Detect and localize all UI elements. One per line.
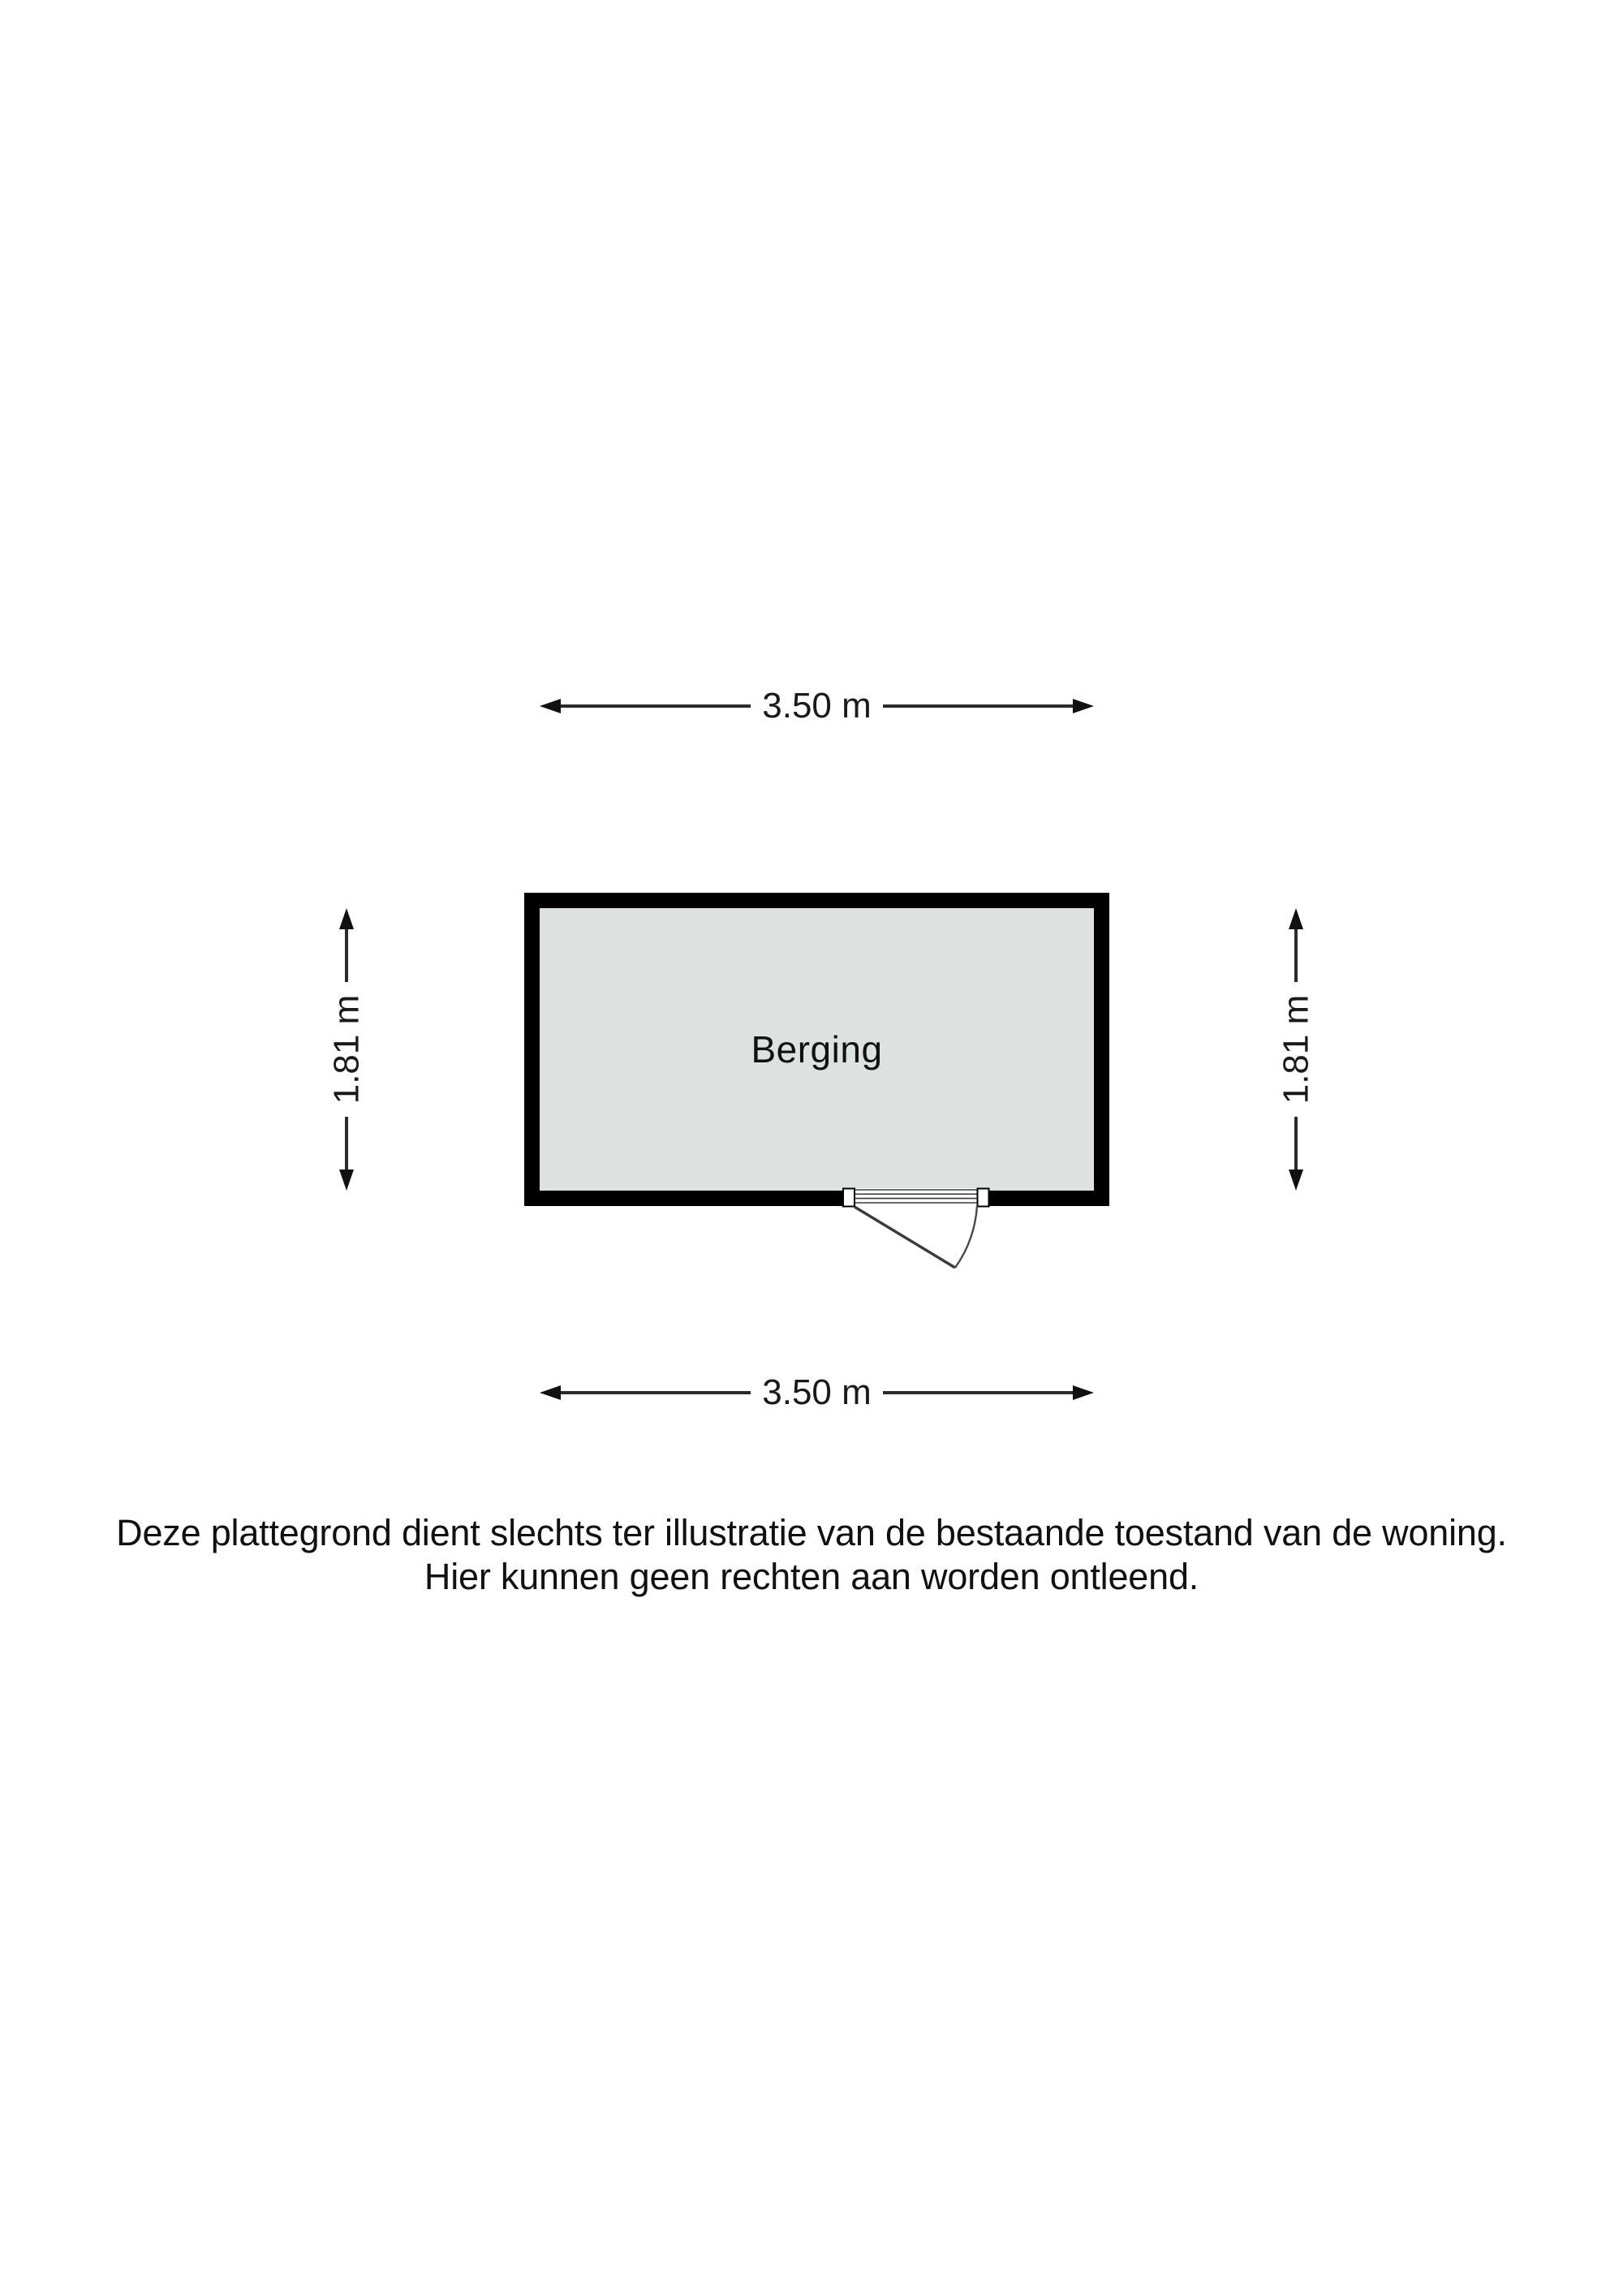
floorplan-page: 3.50 m 1.81 m 1.81 m Berging bbox=[0, 0, 1623, 2296]
dimension-left: 1.81 m bbox=[329, 908, 364, 1191]
room-label: Berging bbox=[751, 1027, 882, 1071]
dimension-line bbox=[1294, 1117, 1298, 1170]
dimension-line bbox=[883, 704, 1073, 708]
room-berging: Berging bbox=[524, 893, 1109, 1206]
arrow-down-icon bbox=[1289, 1170, 1303, 1191]
door-jamb-left bbox=[843, 1189, 855, 1207]
disclaimer-text: Deze plattegrond dient slechts ter illus… bbox=[0, 1511, 1623, 1599]
dimension-label-bottom: 3.50 m bbox=[751, 1375, 883, 1411]
door-leaf bbox=[855, 1207, 955, 1268]
dimension-line bbox=[883, 1391, 1073, 1394]
arrow-left-icon bbox=[540, 1385, 561, 1400]
dimension-label-top: 3.50 m bbox=[751, 688, 883, 724]
dimension-line bbox=[345, 1117, 348, 1170]
disclaimer-line-2: Hier kunnen geen rechten aan worden ontl… bbox=[0, 1555, 1623, 1599]
door-jamb-right bbox=[978, 1189, 989, 1207]
arrow-left-icon bbox=[540, 699, 561, 713]
dimension-bottom: 3.50 m bbox=[540, 1375, 1094, 1411]
dimension-right: 1.81 m bbox=[1278, 908, 1314, 1191]
door-opening bbox=[842, 1188, 989, 1207]
arrow-up-icon bbox=[1289, 908, 1303, 929]
arrow-up-icon bbox=[339, 908, 354, 929]
dimension-label-right: 1.81 m bbox=[1278, 995, 1314, 1105]
disclaimer-line-1: Deze plattegrond dient slechts ter illus… bbox=[0, 1511, 1623, 1555]
dimension-line bbox=[345, 929, 348, 982]
arrow-right-icon bbox=[1073, 1385, 1094, 1400]
dimension-label-box: 1.81 m bbox=[329, 982, 364, 1117]
dimension-label-box: 1.81 m bbox=[1278, 982, 1314, 1117]
arrow-down-icon bbox=[339, 1170, 354, 1191]
dimension-top: 3.50 m bbox=[540, 688, 1094, 724]
dimension-line bbox=[561, 1391, 751, 1394]
door-swing-arc bbox=[955, 1206, 977, 1268]
arrow-right-icon bbox=[1073, 699, 1094, 713]
dimension-line bbox=[561, 704, 751, 708]
dimension-label-left: 1.81 m bbox=[329, 995, 364, 1105]
dimension-line bbox=[1294, 929, 1298, 982]
door bbox=[836, 1183, 998, 1285]
